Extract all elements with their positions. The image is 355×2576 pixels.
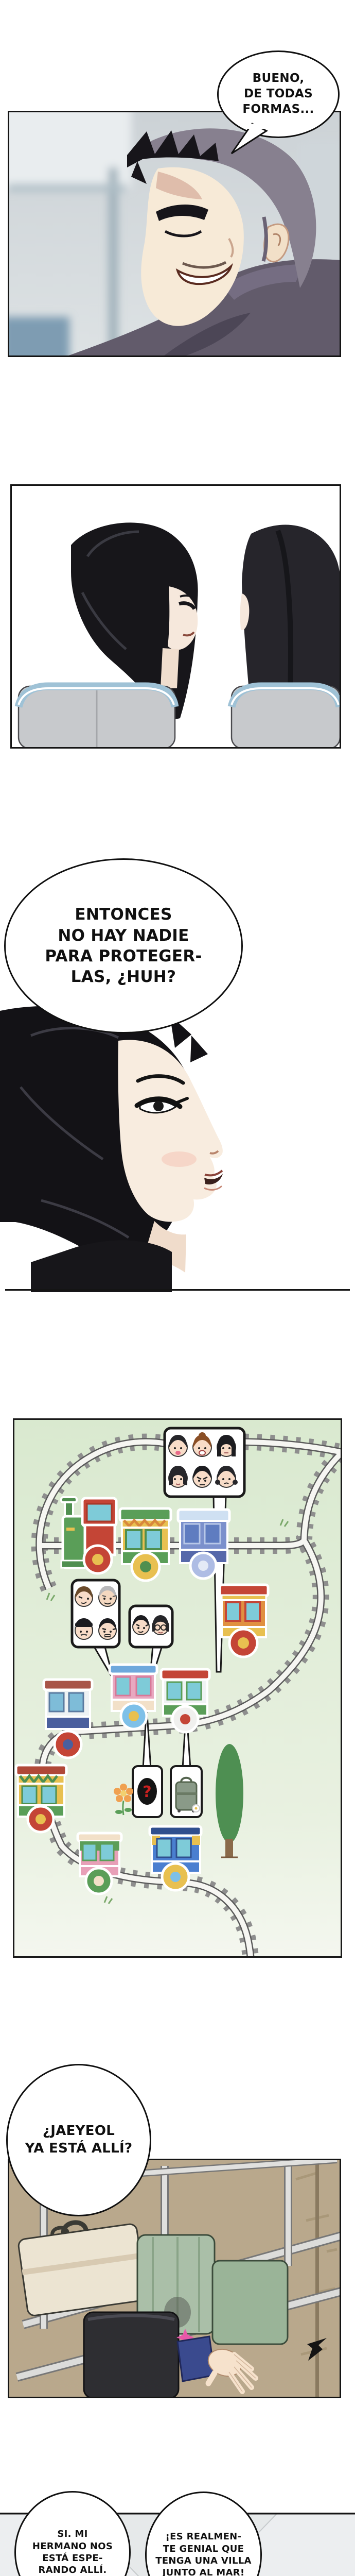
face-box-four xyxy=(72,1580,119,1647)
speech-bubble-entonces: ENTONCES NO HAY NADIE PARA PROTEGER- LAS… xyxy=(4,858,243,1033)
question-mark-icon: ? xyxy=(143,1783,151,1801)
locomotive-icon xyxy=(61,1497,116,1573)
speech-tail xyxy=(226,124,273,160)
question-box: ? xyxy=(133,1766,162,1817)
speech-bubble-villa: ¡ES REALMEN- TE GENIAL QUE TENGA UNA VIL… xyxy=(145,2492,262,2576)
panel-man-smirking xyxy=(8,111,341,357)
face-box-two xyxy=(130,1606,172,1647)
speech-text: ENTONCES NO HAY NADIE PARA PROTEGER- LAS… xyxy=(45,904,202,987)
speech-text: SI. MI HERMANO NOS ESTÁ ESPE- RANDO ALLÍ… xyxy=(32,2528,113,2576)
comic-page: BUENO, DE TODAS FORMAS... xyxy=(0,0,355,2576)
speech-text: ¿JAEYEOL YA ESTÁ ALLÍ? xyxy=(25,2123,133,2158)
panel-train-seats xyxy=(10,484,341,749)
panel-woman-closeup xyxy=(0,1005,355,1292)
blush xyxy=(162,1151,197,1167)
face-icon xyxy=(169,1466,187,1487)
face-icon xyxy=(99,1586,116,1606)
collar xyxy=(31,1240,172,1292)
suitcase-box xyxy=(171,1766,202,1817)
bag-black xyxy=(84,2312,179,2398)
speech-bubble-jaeyeol: ¿JAEYEOL YA ESTÁ ALLÍ? xyxy=(6,2064,151,2216)
speech-text: BUENO, DE TODAS FORMAS... xyxy=(242,71,314,117)
suitcase-green-2 xyxy=(212,2261,288,2344)
face-box-six xyxy=(165,1428,244,1497)
woman-profile xyxy=(0,1006,223,1292)
panel-bottom-line xyxy=(5,1289,350,1291)
face-icon xyxy=(75,1618,93,1639)
face xyxy=(118,1040,222,1222)
face-icon xyxy=(99,1618,116,1639)
panel-train-map: ? xyxy=(13,1418,342,1958)
face-icon xyxy=(193,1466,211,1487)
face-icon xyxy=(217,1435,236,1456)
face-icon xyxy=(169,1435,187,1456)
face-icon xyxy=(133,1615,149,1635)
speech-bubble-hermano: SI. MI HERMANO NOS ESTÁ ESPE- RANDO ALLÍ… xyxy=(14,2491,131,2576)
face-icon xyxy=(75,1586,93,1606)
speech-text: ¡ES REALMEN- TE GENIAL QUE TENGA UNA VIL… xyxy=(155,2531,252,2576)
